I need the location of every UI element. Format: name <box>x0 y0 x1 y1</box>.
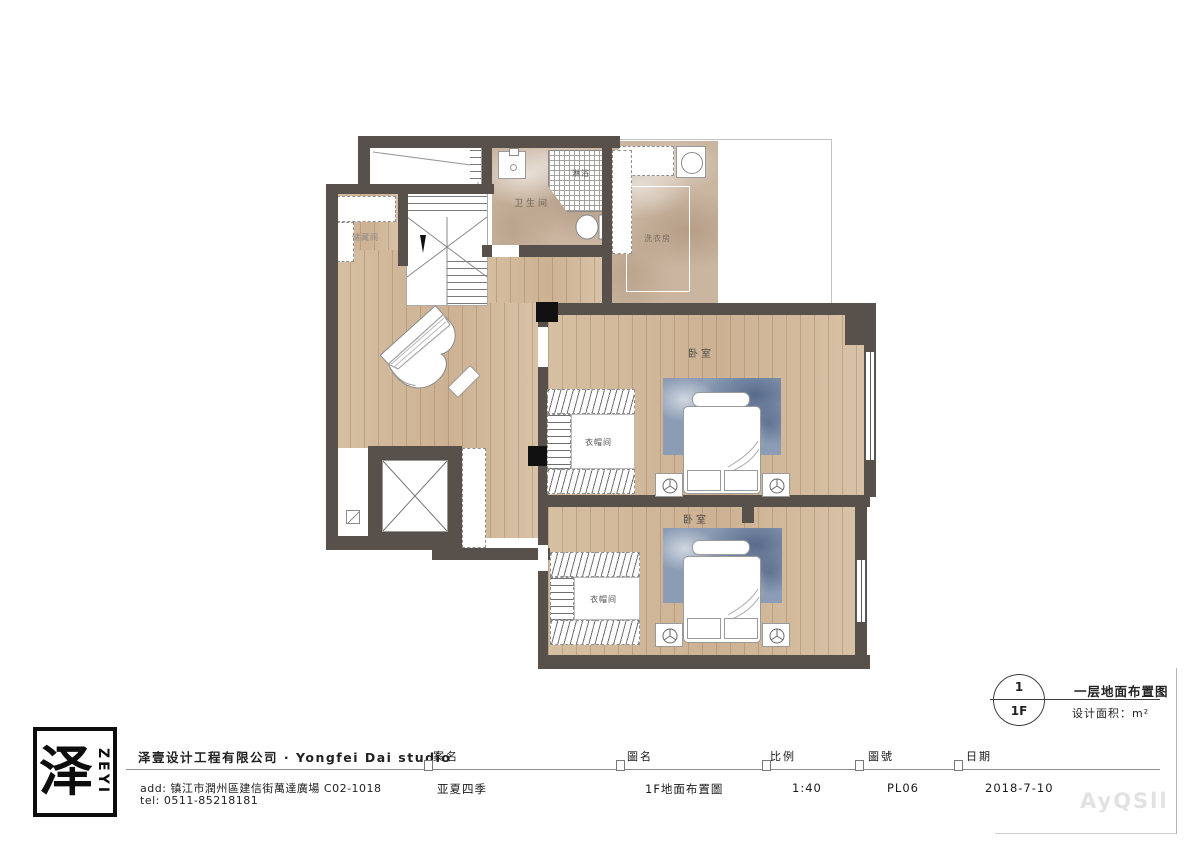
closet2-shelves <box>550 577 574 620</box>
sink-drain <box>510 164 517 171</box>
closet1-label: 衣帽间 <box>585 437 612 448</box>
wall <box>326 184 338 550</box>
field-label-date: 日期 <box>966 748 992 764</box>
wall <box>538 497 548 667</box>
closet2-rack-bottom <box>550 620 640 645</box>
company-logo: 泽 ZEYI <box>33 727 117 817</box>
floor-plan: 储藏间 淋浴 卫生间 洗衣房 <box>0 0 1191 700</box>
bed1-footboard <box>692 392 750 407</box>
door-threshold-steps <box>470 150 481 182</box>
lamp-icon <box>763 624 791 648</box>
field-label-drawing: 圖名 <box>627 748 653 764</box>
wall <box>326 184 494 194</box>
bed1 <box>683 406 761 494</box>
bedroom2-label: 卧室 <box>683 511 709 526</box>
wall <box>432 548 550 560</box>
bedroom1-label: 卧室 <box>688 345 714 360</box>
bed2-pillow-right <box>724 618 758 639</box>
field-value-drawing: 1F地面布置圖 <box>645 781 723 797</box>
stair-direction-arrow <box>420 235 426 253</box>
washing-machine <box>676 146 706 178</box>
titleblock-divider <box>126 769 1160 770</box>
storage-cabinet-top <box>332 196 396 222</box>
frame-right-line <box>1176 668 1177 834</box>
wall <box>482 245 492 257</box>
lamp-icon <box>763 474 791 498</box>
grand-piano <box>372 300 512 430</box>
logo-character: 泽 <box>39 745 93 799</box>
lamp-icon <box>656 474 684 498</box>
closet2: 衣帽间 <box>550 552 640 645</box>
wall <box>602 146 612 306</box>
bathroom-sink <box>498 151 526 179</box>
upper-room-slope-lines <box>368 146 482 186</box>
company-tel: tel: 0511-85218181 <box>140 794 258 807</box>
bed2 <box>683 556 761 643</box>
field-value-project: 亚夏四季 <box>437 781 487 797</box>
callout-level: 1F <box>993 704 1045 718</box>
bedroom1-door-gap <box>538 327 548 367</box>
field-marker <box>855 760 864 771</box>
bedroom1-window <box>865 352 875 460</box>
hall-cabinet-strip <box>462 448 486 548</box>
bedroom2-door-gap <box>538 545 548 571</box>
nightstand <box>655 623 683 647</box>
watermark: AyQSll <box>1080 789 1169 813</box>
closet2-rack-top <box>550 552 640 577</box>
field-marker <box>616 760 625 771</box>
bed2-pillow-left <box>687 618 721 639</box>
nightstand <box>655 473 683 497</box>
field-marker <box>954 760 963 771</box>
field-label-number: 圖號 <box>868 748 894 764</box>
bathroom-door-gap <box>492 245 519 257</box>
closet1: 衣帽间 <box>547 389 635 494</box>
shower-label: 淋浴 <box>572 168 590 179</box>
bed1-pillow-left <box>687 470 721 491</box>
bed1-pillow-right <box>724 470 758 491</box>
frame-bottom-line <box>995 833 1176 834</box>
stair-guides <box>407 189 489 307</box>
wall <box>538 655 870 669</box>
wall <box>545 303 875 315</box>
closet1-shelves <box>547 414 571 469</box>
wall <box>398 194 408 266</box>
laundry-label: 洗衣房 <box>644 233 671 244</box>
callout-title: 一层地面布置图 <box>1074 681 1169 700</box>
wall <box>545 495 870 507</box>
column <box>536 302 558 322</box>
wall <box>482 146 492 192</box>
wall <box>742 495 754 523</box>
closet1-rack-top <box>547 389 635 414</box>
field-value-scale: 1:40 <box>792 781 822 795</box>
staircase <box>406 188 488 306</box>
callout-number: 1 <box>993 680 1045 694</box>
drawing-sheet: 储藏间 淋浴 卫生间 洗衣房 <box>0 0 1191 842</box>
logo-brand-text: ZEYI <box>95 748 111 795</box>
field-marker <box>424 760 433 771</box>
storage-room-label: 储藏间 <box>352 232 379 243</box>
field-label-project: 案名 <box>433 748 459 764</box>
bathroom-label: 卫生间 <box>514 196 550 209</box>
corridor-floor <box>482 257 603 303</box>
wall <box>519 245 612 257</box>
nightstand <box>762 473 790 497</box>
field-value-number: PL06 <box>887 781 919 795</box>
field-marker <box>762 760 771 771</box>
bed2-footboard <box>692 540 750 555</box>
field-value-date: 2018-7-10 <box>985 781 1054 795</box>
company-name: 泽壹设计工程有限公司 · Yongfei Dai studio <box>138 747 451 766</box>
callout-area: 设计面积：m² <box>1072 705 1149 721</box>
door-leaf <box>346 510 360 524</box>
sink-tap <box>509 148 519 156</box>
washer-drum <box>681 152 703 174</box>
nightstand <box>762 623 790 647</box>
closet2-label: 衣帽间 <box>590 594 617 605</box>
lamp-icon <box>656 624 684 648</box>
bedroom2-window <box>856 560 866 622</box>
field-label-scale: 比例 <box>770 748 796 764</box>
elevator-x <box>382 460 448 532</box>
closet1-rack-bottom <box>547 469 635 494</box>
